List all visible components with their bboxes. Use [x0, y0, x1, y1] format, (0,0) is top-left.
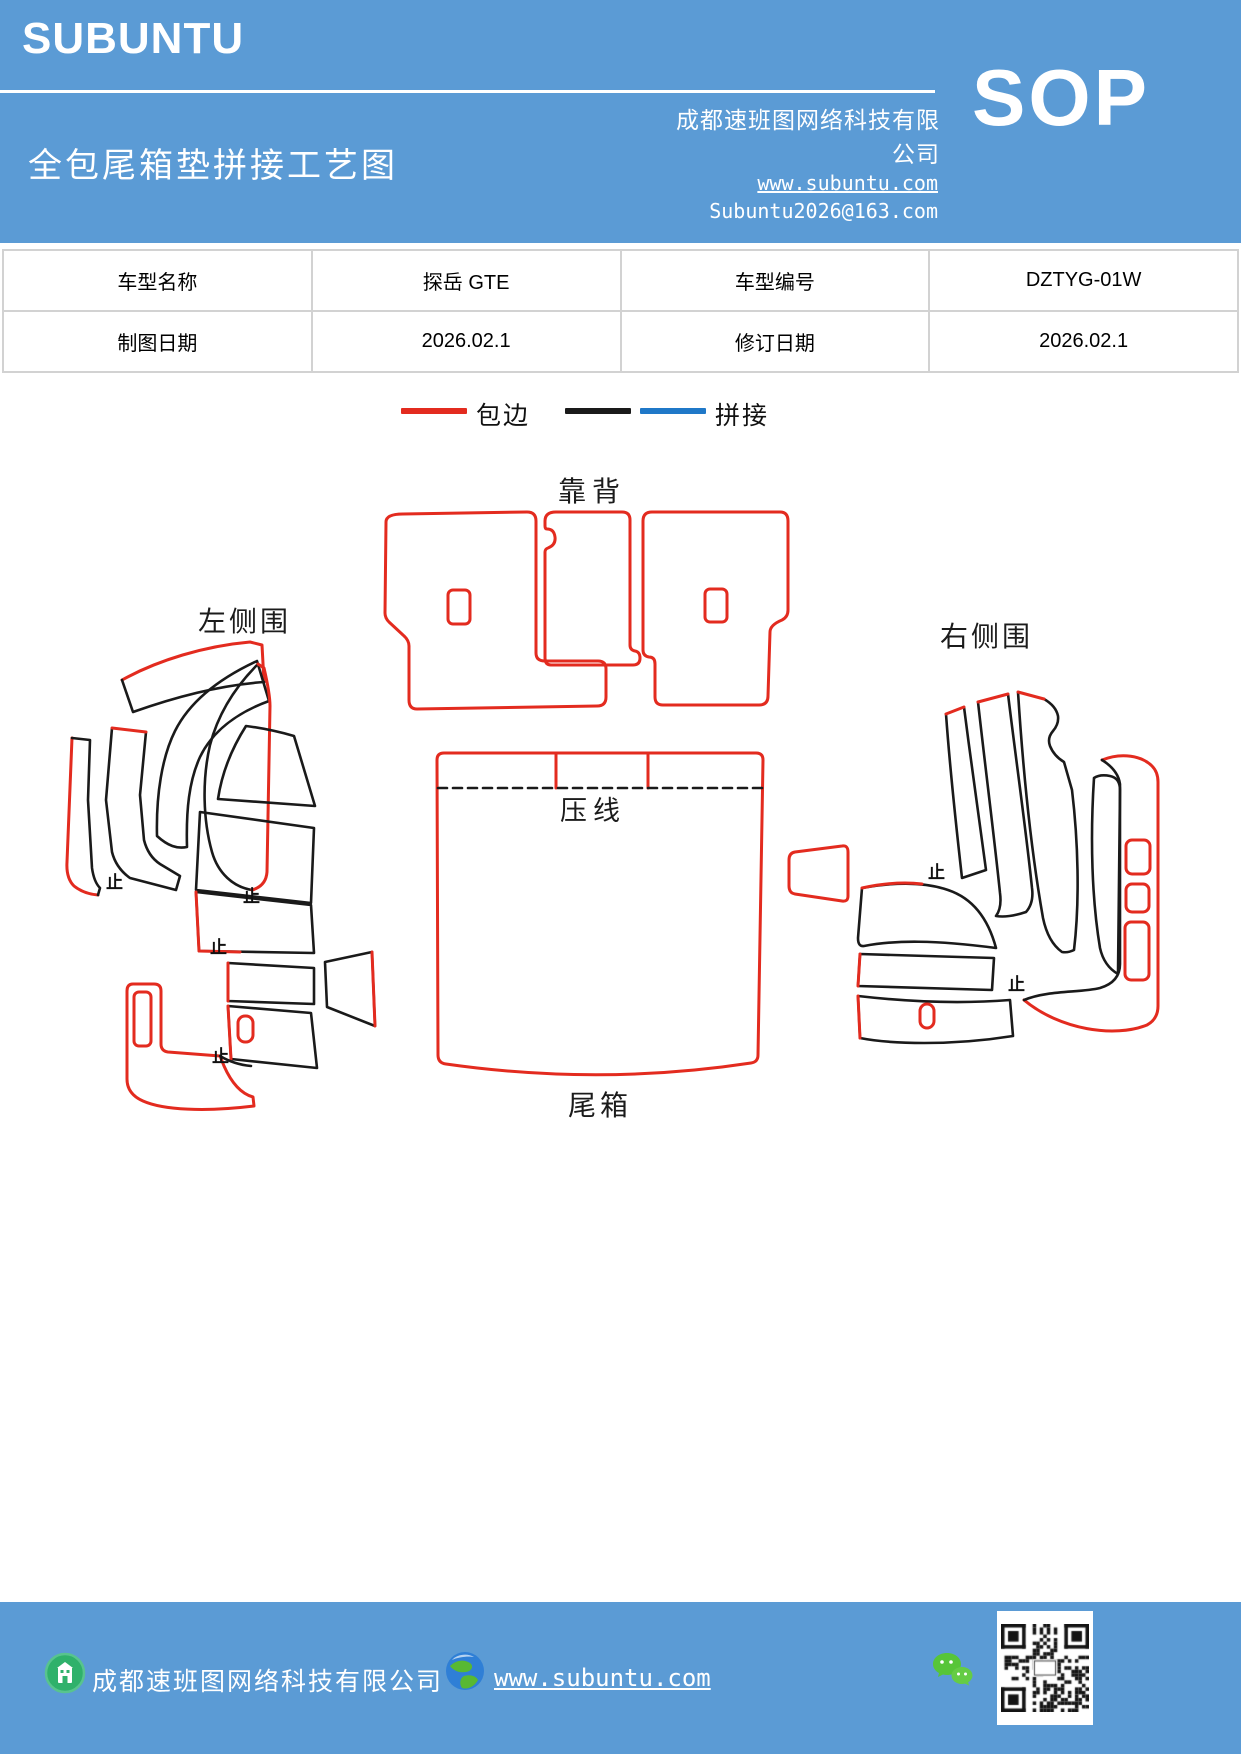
- backrest-right-piece: [643, 512, 788, 705]
- pattern-diagram: [0, 0, 1241, 1754]
- right-strip3-red-cap: [1018, 692, 1044, 699]
- right-boot-hole-3: [1125, 922, 1149, 980]
- right-strip2-red-cap: [978, 694, 1008, 702]
- wechat-icon: [930, 1650, 976, 1696]
- right-vertical-piece: [1092, 775, 1120, 974]
- left-banana-strip-red: [122, 642, 264, 682]
- left-trapezoid-e: [218, 726, 315, 806]
- right-hill-piece: [858, 884, 996, 948]
- backrest-left-hole: [448, 590, 470, 624]
- right-band3-hole: [920, 1004, 934, 1028]
- label-backrest: 靠背: [558, 470, 626, 510]
- label-left-side: 左侧围: [198, 600, 291, 640]
- left-trapezoid-d-red-edge: [372, 952, 375, 1026]
- backrest-right-hole: [705, 589, 727, 622]
- stop-mark: 止: [210, 933, 227, 958]
- stop-mark: 止: [928, 858, 945, 883]
- label-trunk: 尾箱: [568, 1084, 632, 1124]
- right-strip2-black: [978, 694, 1032, 917]
- globe-icon: [444, 1650, 486, 1692]
- right-band2-red-edge: [858, 954, 860, 986]
- right-trapezoid-red: [789, 846, 848, 901]
- right-strip3-black: [1018, 692, 1078, 952]
- stop-mark: 止: [243, 882, 260, 907]
- stop-mark: 止: [212, 1042, 229, 1067]
- left-piece-c-hole: [238, 1016, 253, 1042]
- left-band-b: [228, 963, 314, 1004]
- stop-mark: 止: [1008, 970, 1025, 995]
- stop-mark: 止: [106, 868, 123, 893]
- footer-company-name: 成都速班图网络科技有限公司: [92, 1662, 443, 1698]
- left-strip2-red-cap: [112, 728, 146, 732]
- building-icon: [44, 1652, 86, 1694]
- right-hill-red-edge: [862, 883, 922, 888]
- right-boot-hole-2: [1126, 884, 1149, 912]
- right-strip1-red-cap: [946, 707, 964, 714]
- right-boot-hole-1: [1126, 840, 1150, 874]
- qr-code: [997, 1611, 1093, 1725]
- right-band2: [858, 954, 994, 990]
- right-strip1-black: [946, 707, 986, 878]
- label-crease-line: 压线: [560, 789, 626, 828]
- footer-website-link[interactable]: www.subuntu.com: [494, 1664, 711, 1692]
- left-banana-strip-black: [122, 680, 264, 712]
- footer: 成都速班图网络科技有限公司 www.subuntu.com: [0, 1602, 1241, 1754]
- left-strip2-black: [106, 728, 180, 890]
- left-trapezoid-d: [325, 952, 375, 1026]
- backrest-left-piece: [385, 512, 606, 709]
- left-strip1-black: [72, 738, 100, 895]
- backrest-middle-piece: [545, 512, 640, 665]
- sop-document-page: SUBUNTU 成都速班图网络科技有限公司 全包尾箱垫拼接工艺图 www.sub…: [0, 0, 1241, 1754]
- right-band3-red-edge: [858, 996, 860, 1038]
- left-big-piece-black: [205, 664, 258, 890]
- label-right-side: 右侧围: [940, 615, 1033, 655]
- left-boot-slot: [134, 992, 151, 1046]
